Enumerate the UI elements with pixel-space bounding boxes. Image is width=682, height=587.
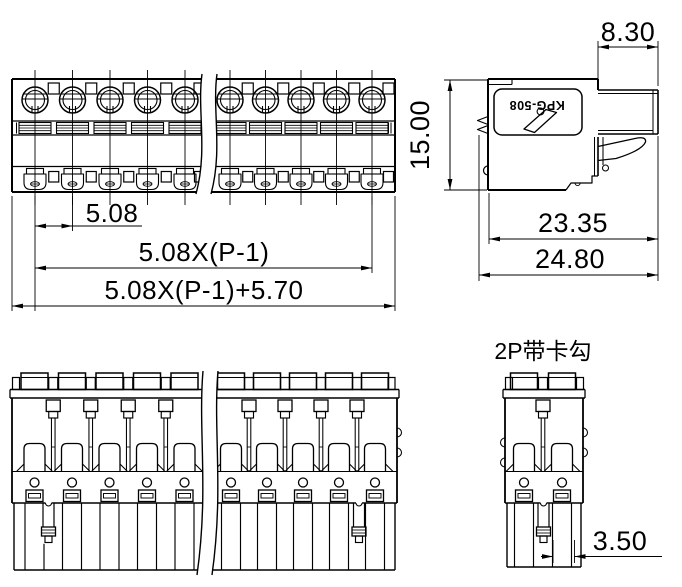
dim-pitch: 5.08 [86, 198, 139, 228]
dim-height: 15.00 [405, 100, 435, 170]
dim-overall-width: 5.08X(P-1)+5.70 [104, 275, 303, 305]
front-view-2p [501, 373, 588, 567]
top-view [12, 70, 395, 205]
variant-note-label: 2P带卡勾 [494, 338, 591, 364]
dim-overall-depth: 24.80 [535, 244, 605, 274]
dim-hook-width: 3.50 [593, 526, 648, 556]
dim-body-depth: 23.35 [538, 208, 608, 238]
model-label: KPG-508 [509, 98, 565, 112]
front-view [10, 371, 402, 575]
technical-drawing-page: 5.08 5.08X(P-1) 5.08X(P-1)+5.70 8.30 15.… [0, 0, 682, 587]
dimension-labels: 5.08 5.08X(P-1) 5.08X(P-1)+5.70 8.30 15.… [86, 17, 656, 556]
side-view [478, 79, 659, 190]
dim-tab-width: 8.30 [601, 17, 656, 47]
dim-pitch-span: 5.08X(P-1) [139, 237, 270, 267]
terminal-block-drawing: 5.08 5.08X(P-1) 5.08X(P-1)+5.70 8.30 15.… [0, 0, 682, 587]
